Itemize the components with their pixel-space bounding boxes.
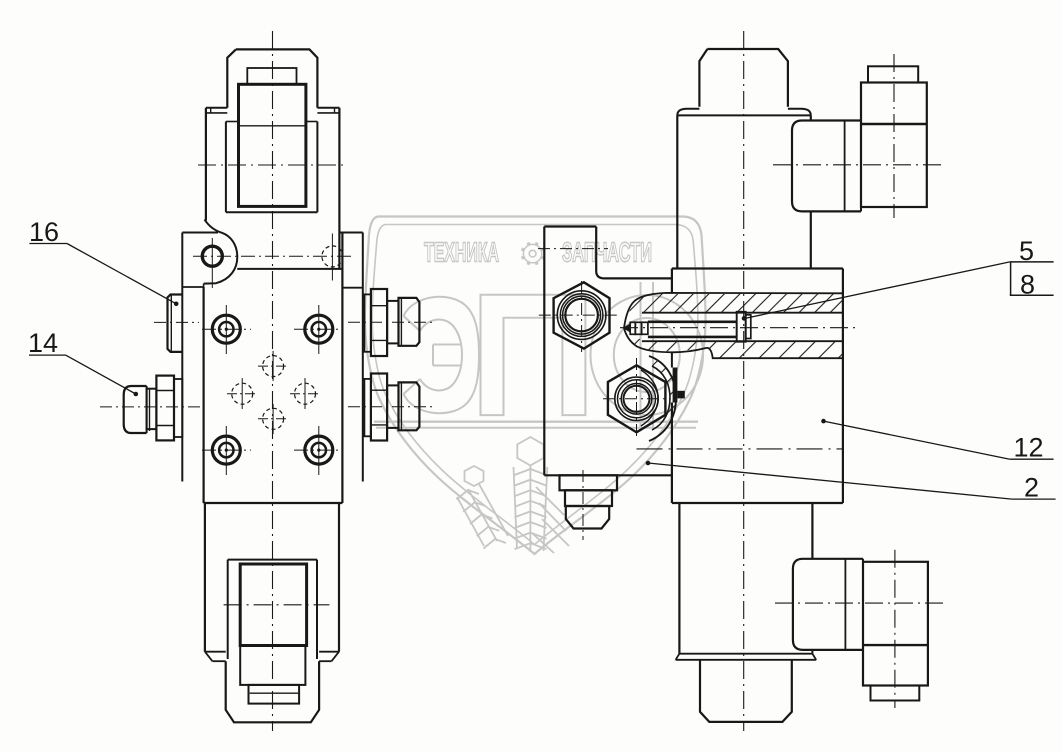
svg-text:16: 16 [29, 217, 59, 247]
svg-text:14: 14 [28, 328, 58, 358]
svg-text:ТЕХНИКА: ТЕХНИКА [424, 237, 499, 268]
svg-text:2: 2 [1024, 473, 1039, 503]
svg-text:12: 12 [1013, 433, 1043, 463]
svg-text:ЗАПЧАСТИ: ЗАПЧАСТИ [562, 237, 652, 268]
